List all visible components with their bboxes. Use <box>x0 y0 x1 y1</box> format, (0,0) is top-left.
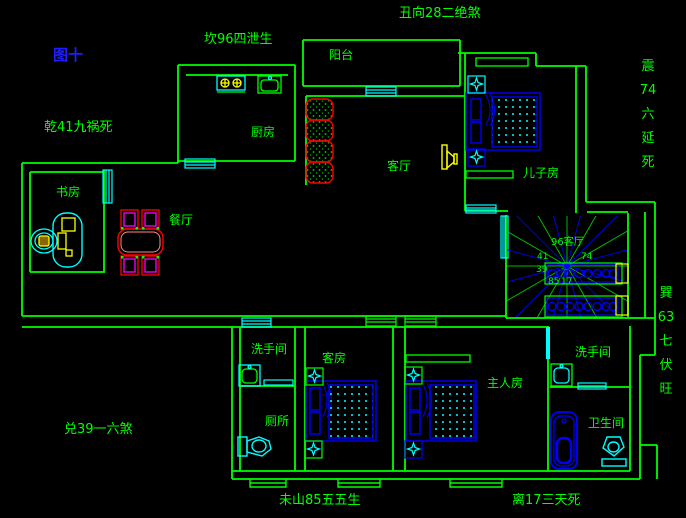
study-desk <box>31 213 82 267</box>
sofa <box>306 99 333 183</box>
fan-icon <box>468 76 485 93</box>
room-label-bathroom: 卫生间 <box>588 417 624 430</box>
corridor-windows <box>366 316 436 326</box>
desk-chair-icon <box>31 229 57 253</box>
door-bar-washroom-right <box>546 327 550 359</box>
toilet-icon <box>238 437 271 456</box>
chair-icon <box>121 256 138 275</box>
room-label-toilet: 厕所 <box>265 415 289 428</box>
direction-label-north: 坎96四泄生 <box>204 33 273 47</box>
room-label-dining-room: 餐厅 <box>169 214 193 227</box>
master-shelf <box>406 355 470 362</box>
master-bed <box>406 381 476 441</box>
sons-bed <box>466 93 540 150</box>
sons-cabinet <box>476 58 528 66</box>
stove-icon <box>217 76 245 92</box>
kitchen-sink-icon <box>258 76 281 93</box>
compass-number-ne: 74 <box>581 253 592 262</box>
balcony-window-icon <box>366 87 396 96</box>
room-label-living-room: 客厅 <box>387 160 411 173</box>
guest-bed <box>306 381 376 441</box>
room-label-washroom-right: 洗手间 <box>575 346 611 359</box>
direction-label-southeast: 巽 63 七 伏 旺 <box>652 282 680 402</box>
room-label-guest-room: 客房 <box>322 352 346 365</box>
room-label-master-room: 主人房 <box>487 377 523 390</box>
direction-label-east: 震 74 六 延 死 <box>634 55 662 175</box>
room-label-kitchen: 厨房 <box>251 126 275 139</box>
figure-number-label: 图十 <box>53 47 83 64</box>
room-label-sons-room: 儿子房 <box>523 167 559 180</box>
direction-label-south: 未山85五五生 <box>279 494 361 508</box>
chair-icon <box>142 256 159 275</box>
direction-label-west: 兑39一六煞 <box>64 423 133 437</box>
compass-center-label: 96客厅 <box>551 238 584 248</box>
dining-table <box>118 229 163 255</box>
compass-number-sw: 85 <box>548 278 559 287</box>
compass-center-dot <box>564 263 570 269</box>
computer-icon <box>58 218 75 256</box>
direction-label-south-right: 离17三天死 <box>512 494 581 508</box>
fan-icon <box>468 149 485 166</box>
washroom-window-icon <box>242 318 271 327</box>
fan-icon <box>405 441 422 458</box>
compass-number-w: 39 <box>536 266 547 275</box>
sons-desk <box>466 171 513 178</box>
compass-number-nw: 41 <box>537 253 548 262</box>
room-label-balcony: 阳台 <box>329 49 353 62</box>
fan-icon <box>305 441 322 458</box>
tv-icon <box>442 145 457 169</box>
direction-label-top: 丑向28二绝煞 <box>399 7 481 21</box>
bathroom-toilet-icon <box>602 437 626 466</box>
chair-icon <box>121 210 138 230</box>
bathtub-icon <box>551 412 577 469</box>
bathroom-window-icon <box>578 383 606 389</box>
fan-icon <box>306 368 323 385</box>
washbasin-right-icon <box>551 364 572 386</box>
chair-icon <box>142 210 159 230</box>
washbasin-left-icon <box>239 365 260 386</box>
cad-floorplan-viewport[interactable]: 图十 丑向28二绝煞 坎96四泄生 乾41九祸死 震 74 六 延 死 巽 63… <box>0 0 686 518</box>
dining-chairs <box>121 210 159 275</box>
room-label-study: 书房 <box>56 186 80 199</box>
direction-label-northwest: 乾41九祸死 <box>44 121 113 135</box>
stair-window-icon <box>501 216 508 258</box>
room-label-washroom-left: 洗手间 <box>251 343 287 356</box>
compass-number-s: 17 <box>561 278 572 287</box>
door-bar-toilet <box>264 380 293 385</box>
